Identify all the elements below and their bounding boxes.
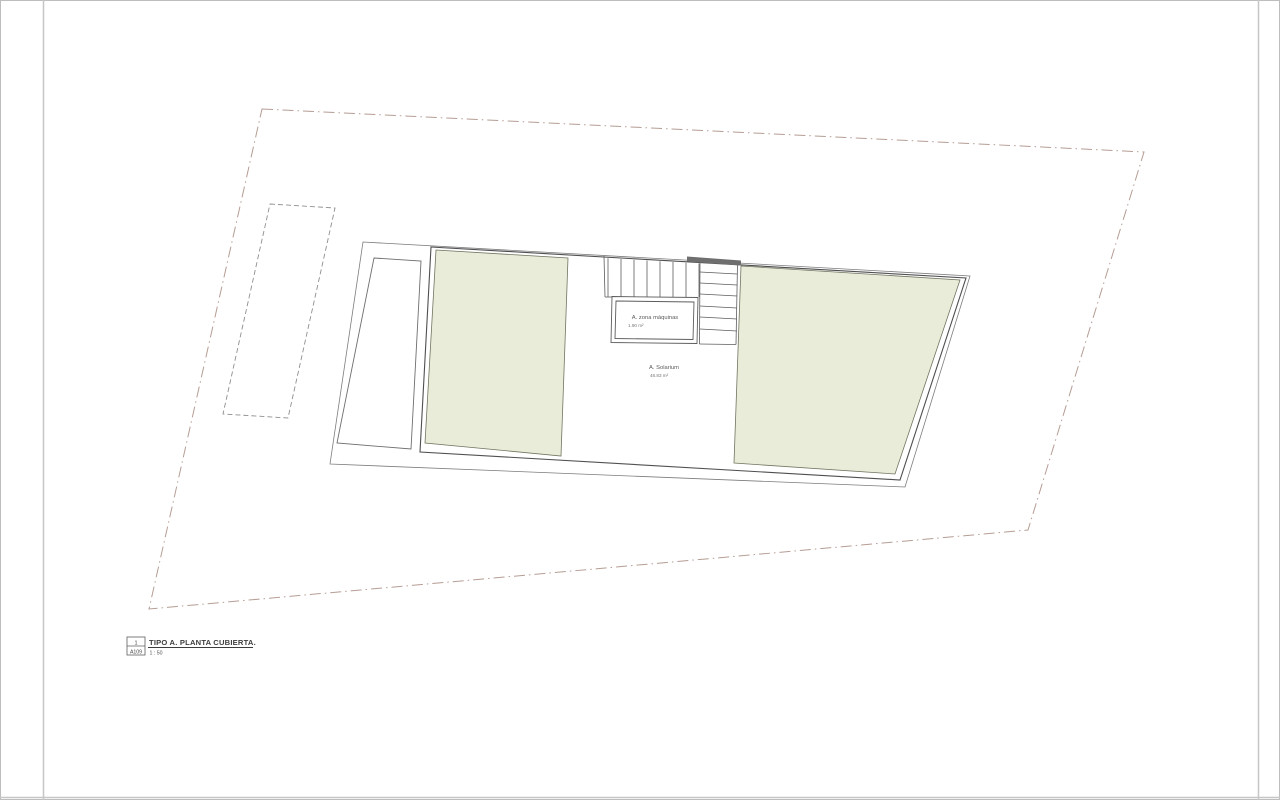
drawing-title: TIPO A. PLANTA CUBIERTA. bbox=[149, 638, 256, 647]
machine-room-area-value: 1.90 m² bbox=[628, 323, 644, 328]
drawing-scale: 1 : 50 bbox=[150, 651, 163, 657]
parking-dashed-outline bbox=[223, 204, 335, 418]
roof-plan-canvas: A. zona máquinas 1.90 m² A. Solarium 48.… bbox=[0, 0, 1280, 800]
terrace-left bbox=[425, 250, 568, 456]
detail-number: 1 bbox=[134, 641, 137, 647]
terrace-right bbox=[734, 266, 960, 474]
drawing-sheet: A. zona máquinas 1.90 m² A. Solarium 48.… bbox=[0, 0, 1280, 800]
solarium-label: A. Solarium bbox=[649, 365, 679, 371]
title-block: 1 A109 TIPO A. PLANTA CUBIERTA. 1 : 50 bbox=[127, 637, 256, 657]
machine-room-label: A. zona máquinas bbox=[632, 315, 679, 321]
solarium-area-value: 48.83 m² bbox=[650, 373, 669, 378]
sheet-number: A109 bbox=[130, 650, 142, 656]
